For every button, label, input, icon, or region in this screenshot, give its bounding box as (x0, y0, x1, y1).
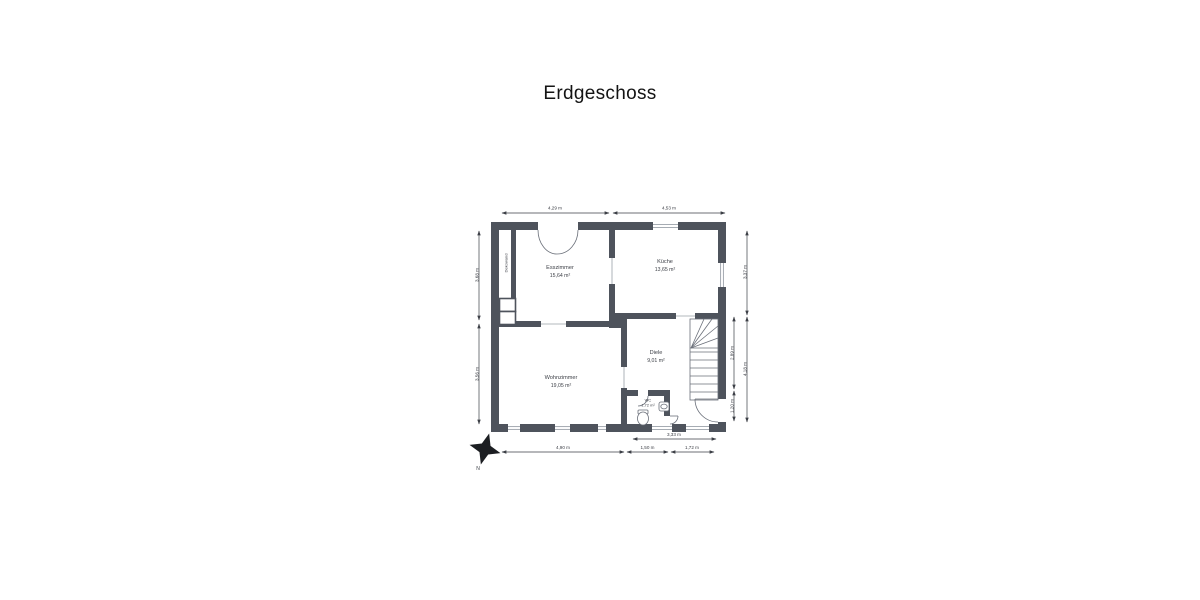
svg-text:9,01 m²: 9,01 m² (647, 358, 665, 364)
dim-label: 4,90 m (556, 445, 570, 450)
door-swing (557, 230, 578, 254)
dim-label: 3,33 m (667, 432, 681, 437)
door-swing (670, 416, 678, 424)
window (508, 424, 520, 432)
room-label-wc: WC 1,72 m² (641, 398, 655, 408)
dim-label: 3,37 m (743, 265, 748, 279)
window (555, 424, 570, 432)
page-title: Erdgeschoss (0, 83, 1200, 105)
room-label-wohnzimmer: Wohnzimmer 19,05 m² (545, 375, 578, 389)
dim-label: 3,56 m (475, 367, 480, 381)
window (598, 424, 606, 432)
window (686, 424, 709, 432)
window (652, 424, 672, 432)
svg-text:Diele: Diele (650, 350, 663, 356)
compass-north-label: N (476, 466, 480, 472)
dim-label: 1,20 m (730, 399, 735, 413)
room-label-esszimmer: Esszimmer 15,64 m² (546, 265, 574, 279)
toilet-icon (638, 412, 649, 425)
window (653, 222, 678, 230)
dim-label: 4,53 m (662, 206, 676, 211)
deko-wall (511, 230, 516, 298)
svg-text:Wohnzimmer: Wohnzimmer (545, 375, 578, 381)
room-label-kueche: Küche 13,65 m² (655, 259, 676, 273)
svg-text:19,05 m²: 19,05 m² (551, 383, 572, 389)
svg-text:1,72 m²: 1,72 m² (641, 403, 655, 408)
dim-label: 4,29 m (548, 206, 562, 211)
entrance-door (695, 399, 726, 422)
sink-icon (661, 404, 667, 409)
north-compass-icon: N (465, 429, 504, 472)
double-door-opening (538, 222, 578, 230)
staircase (690, 319, 718, 400)
floor-plan-page: Erdgeschoss (0, 0, 1200, 600)
room-label-diele: Diele 9,01 m² (647, 350, 665, 364)
dim-label: 2,89 m (730, 346, 735, 360)
svg-text:13,65 m²: 13,65 m² (655, 267, 676, 273)
dekowand-label: Dekowand (504, 254, 509, 273)
dim-label: 3,68 m (475, 268, 480, 282)
dim-label: 4,18 m (743, 362, 748, 376)
svg-text:Küche: Küche (657, 259, 673, 265)
svg-text:Esszimmer: Esszimmer (546, 265, 574, 271)
interior-walls (499, 230, 718, 424)
dim-label: 1,50 m (640, 445, 654, 450)
door-swing (538, 230, 557, 254)
window (718, 263, 726, 287)
dim-label: 1,72 m (685, 445, 699, 450)
svg-text:15,64 m²: 15,64 m² (550, 273, 571, 279)
deko-boxes (500, 299, 516, 325)
